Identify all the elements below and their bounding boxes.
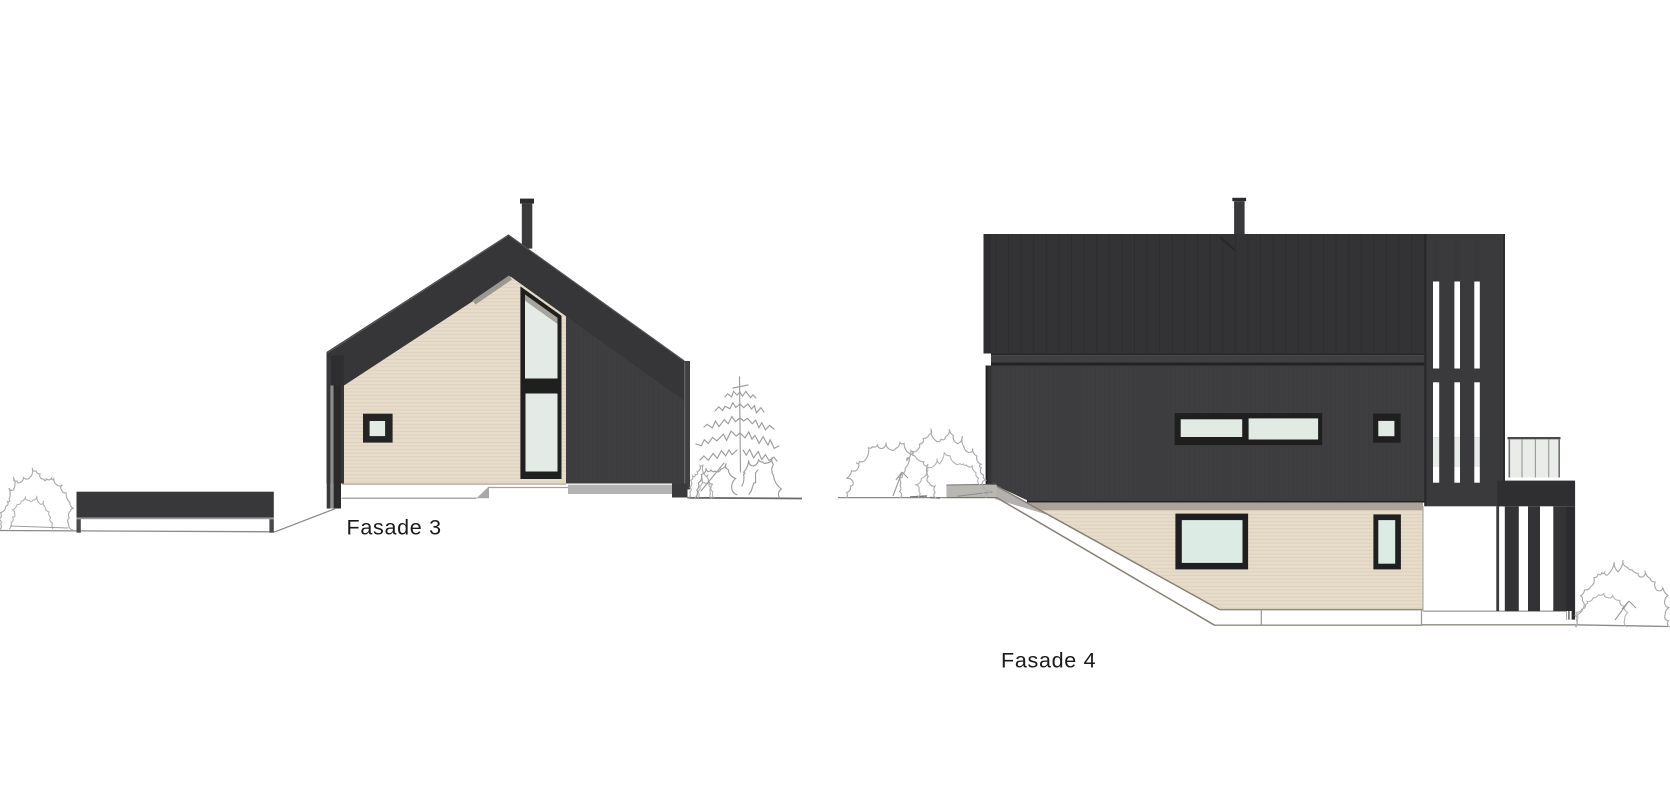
svg-text:Fasade 4: Fasade 4 [1001,649,1096,673]
svg-text:Fasade 3: Fasade 3 [347,516,442,540]
